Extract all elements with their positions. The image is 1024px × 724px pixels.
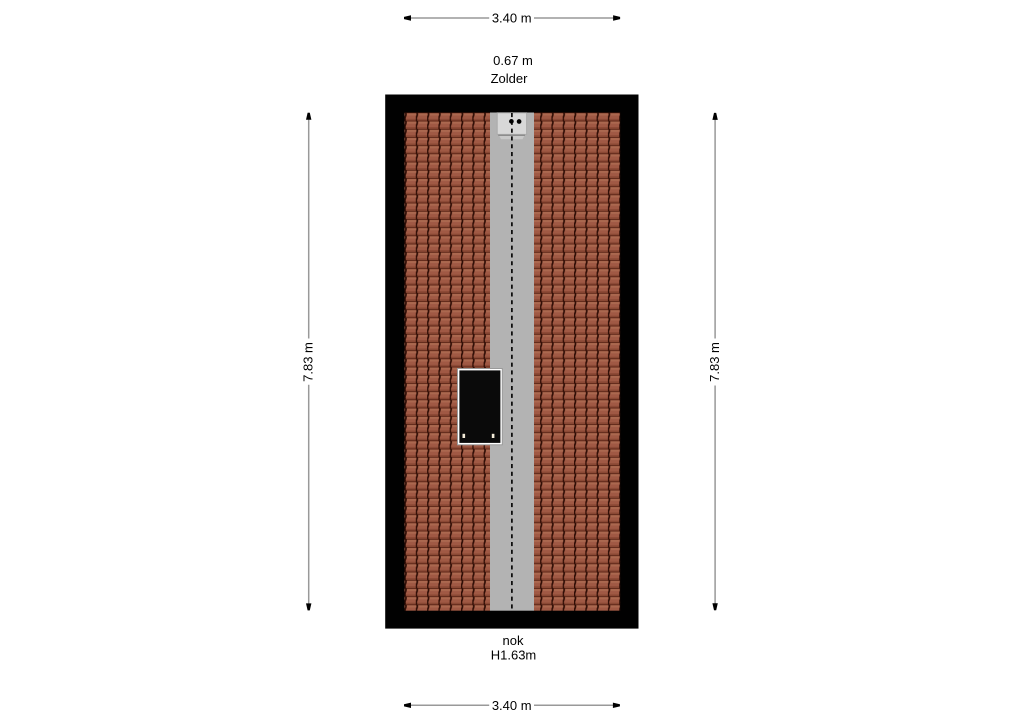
svg-text:3.40 m: 3.40 m [492,698,532,713]
svg-text:7.83 m: 7.83 m [707,342,722,382]
svg-text:0.67 m: 0.67 m [493,53,533,68]
svg-text:nok: nok [503,633,524,648]
svg-text:3.40 m: 3.40 m [492,11,532,26]
svg-text:Zolder: Zolder [491,71,529,86]
svg-text:7.83 m: 7.83 m [301,342,316,382]
svg-text:H1.63m: H1.63m [491,648,537,663]
